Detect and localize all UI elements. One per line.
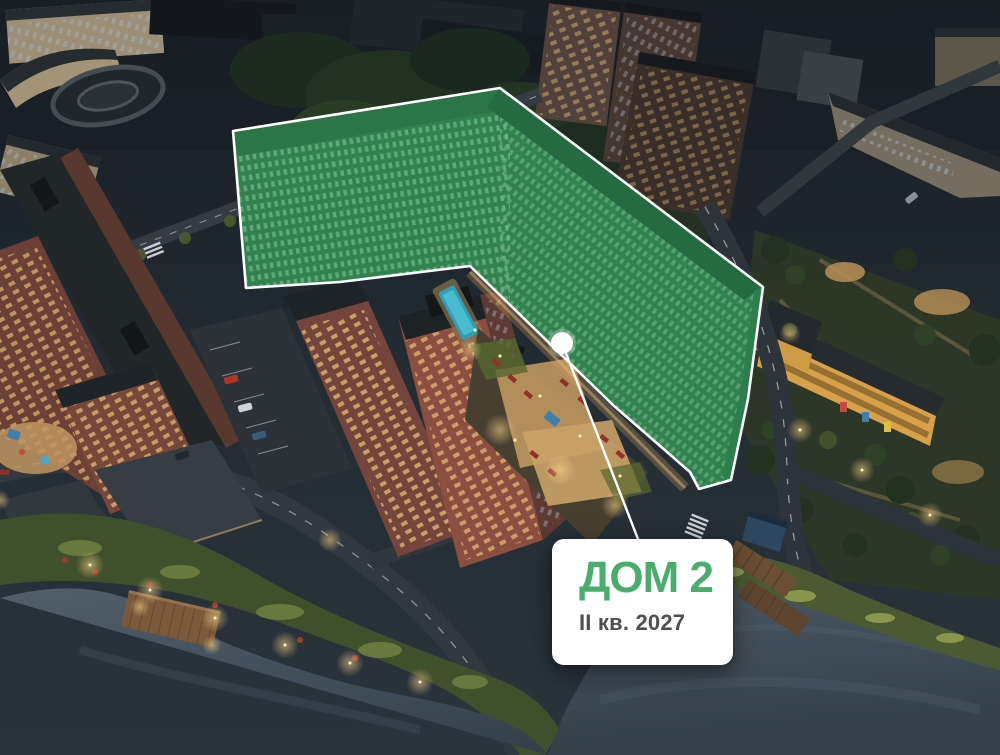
- callout-dot[interactable]: [551, 332, 573, 354]
- building-name-label: ДОМ 2: [579, 556, 733, 601]
- completion-date-label: II кв. 2027: [579, 610, 733, 636]
- building-callout-card[interactable]: ДОМ 2 II кв. 2027: [552, 539, 733, 665]
- aerial-render: [0, 0, 1000, 755]
- masterplan-scene: ДОМ 2 II кв. 2027: [0, 0, 1000, 755]
